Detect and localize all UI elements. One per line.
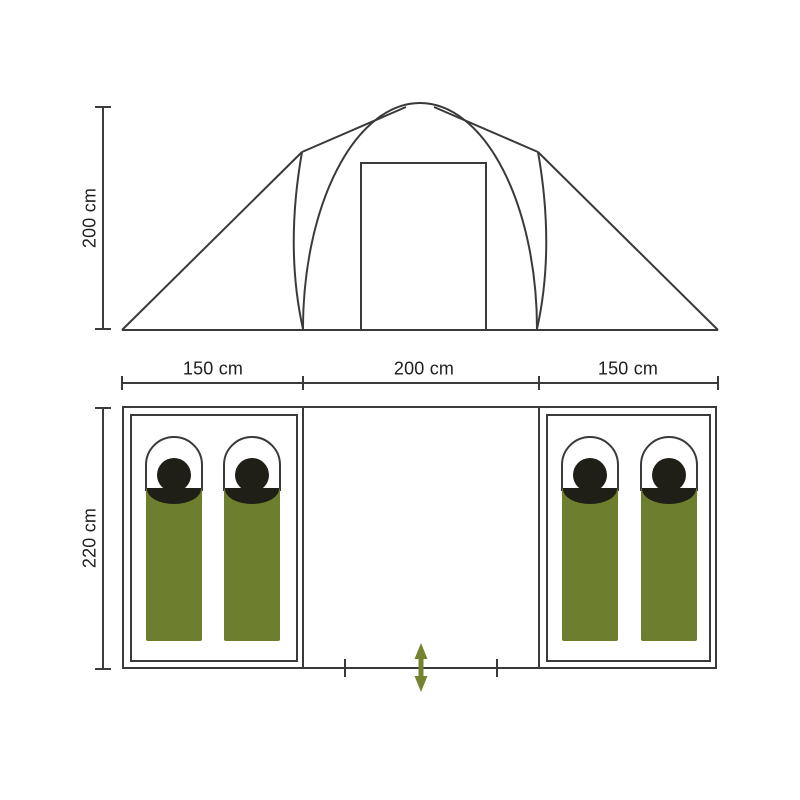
sleeping-bag <box>562 437 618 641</box>
sleeping-bag <box>146 437 202 641</box>
elevation-height-label: 200 cm <box>80 188 101 248</box>
left-cabin <box>123 407 303 668</box>
right-slope-line <box>538 152 718 330</box>
right-pole-arc <box>537 152 546 329</box>
right-ridge-line <box>434 107 538 152</box>
plan-width-label-left: 150 cm <box>183 359 243 380</box>
plan-width-label-center: 200 cm <box>394 359 454 380</box>
floor-plan-view <box>95 376 718 692</box>
tent-dimensions-diagram: 200 cm 220 cm 150 cm 200 cm 150 cm <box>0 0 800 800</box>
sleeping-bag <box>641 437 697 641</box>
plan-depth-label: 220 cm <box>80 508 101 568</box>
left-pole-arc <box>294 152 303 329</box>
plan-width-label-right: 150 cm <box>598 359 658 380</box>
left-slope-line <box>122 152 302 330</box>
elevation-view <box>95 103 718 330</box>
sleeping-bag <box>224 437 280 641</box>
left-ridge-line <box>302 107 406 152</box>
tent-door <box>361 163 486 330</box>
central-area <box>303 407 539 692</box>
right-cabin <box>539 407 716 668</box>
diagram-drawing <box>0 0 800 800</box>
